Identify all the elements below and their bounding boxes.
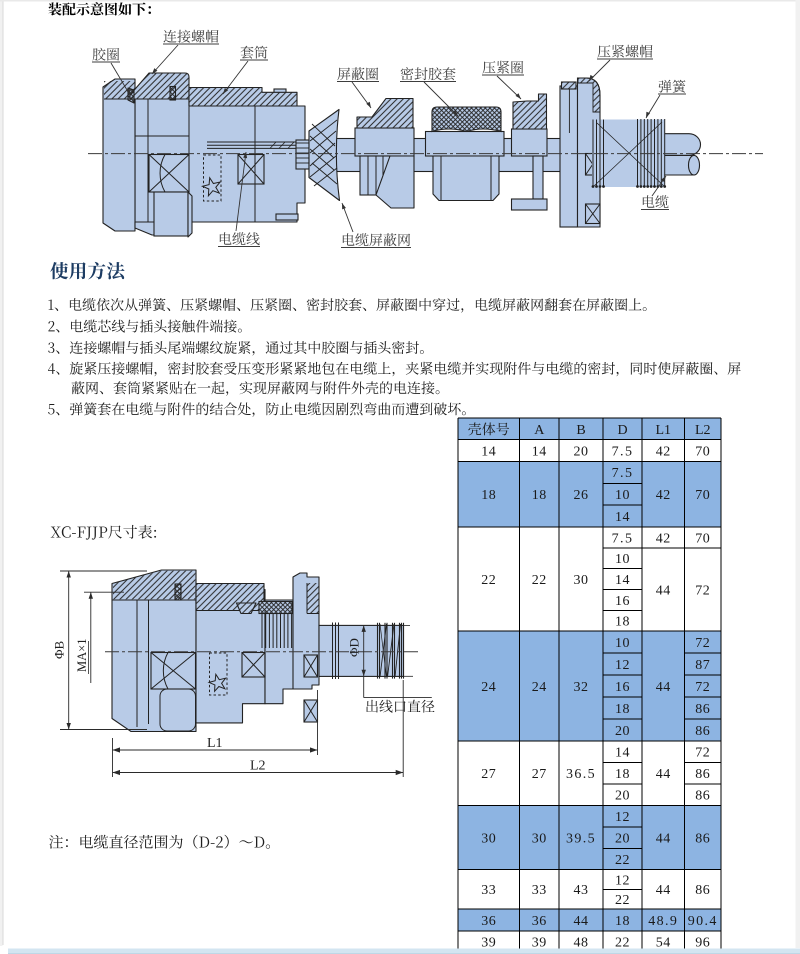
svg-text:39.5: 39.5 [566, 832, 596, 847]
svg-text:27: 27 [532, 767, 547, 782]
svg-text:16: 16 [615, 594, 630, 609]
svg-text:44: 44 [656, 680, 671, 695]
svg-text:26: 26 [574, 488, 589, 503]
svg-text:7.5: 7.5 [612, 531, 634, 546]
svg-text:18: 18 [481, 488, 496, 503]
svg-text:54: 54 [656, 936, 671, 951]
svg-text:70: 70 [695, 488, 710, 503]
svg-text:72: 72 [695, 636, 710, 651]
svg-text:30: 30 [532, 832, 547, 847]
svg-text:L1: L1 [207, 736, 223, 751]
svg-text:18: 18 [615, 767, 630, 782]
svg-text:7.5: 7.5 [612, 466, 634, 481]
svg-text:18: 18 [615, 702, 630, 717]
svg-text:36.5: 36.5 [566, 767, 596, 782]
svg-text:44: 44 [656, 583, 671, 598]
svg-text:10: 10 [615, 636, 630, 651]
svg-text:33: 33 [481, 883, 496, 898]
svg-text:36: 36 [532, 914, 547, 929]
svg-text:24: 24 [481, 680, 496, 695]
svg-text:44: 44 [656, 883, 671, 898]
svg-text:12: 12 [615, 810, 630, 825]
svg-text:7.5: 7.5 [612, 444, 634, 459]
svg-text:30: 30 [574, 573, 589, 588]
svg-text:42: 42 [656, 444, 671, 459]
svg-text:10: 10 [615, 488, 630, 503]
svg-text:86: 86 [695, 724, 710, 739]
svg-text:L1: L1 [655, 423, 671, 438]
svg-text:86: 86 [695, 767, 710, 782]
svg-text:87: 87 [695, 658, 710, 673]
svg-text:18: 18 [532, 488, 547, 503]
svg-text:44: 44 [656, 832, 671, 847]
svg-text:14: 14 [615, 746, 630, 761]
svg-text:70: 70 [695, 444, 710, 459]
svg-text:42: 42 [656, 488, 671, 503]
svg-text:90.4: 90.4 [688, 914, 718, 929]
svg-text:22: 22 [615, 936, 630, 951]
svg-text:32: 32 [574, 680, 589, 695]
svg-text:44: 44 [574, 914, 589, 929]
svg-text:30: 30 [481, 832, 496, 847]
svg-text:22: 22 [615, 893, 630, 908]
svg-text:20: 20 [574, 444, 589, 459]
svg-text:72: 72 [695, 680, 710, 695]
svg-text:86: 86 [695, 832, 710, 847]
svg-text:12: 12 [615, 873, 630, 888]
svg-text:27: 27 [481, 767, 496, 782]
svg-text:33: 33 [532, 883, 547, 898]
svg-text:22: 22 [532, 573, 547, 588]
svg-text:43: 43 [574, 883, 589, 898]
svg-text:86: 86 [695, 883, 710, 898]
svg-text:72: 72 [695, 746, 710, 761]
svg-text:20: 20 [615, 832, 630, 847]
svg-text:22: 22 [481, 573, 496, 588]
svg-text:A: A [534, 423, 545, 438]
svg-text:ΦB: ΦB [52, 640, 67, 659]
svg-text:20: 20 [615, 789, 630, 804]
svg-text:39: 39 [532, 936, 547, 951]
svg-text:18: 18 [615, 914, 630, 929]
svg-text:96: 96 [695, 936, 710, 951]
svg-text:ΦD: ΦD [347, 638, 362, 657]
svg-text:MA×1: MA×1 [75, 639, 89, 672]
svg-text:24: 24 [532, 680, 547, 695]
svg-text:20: 20 [615, 724, 630, 739]
svg-text:14: 14 [615, 510, 630, 525]
svg-text:18: 18 [615, 615, 630, 630]
svg-text:14: 14 [615, 573, 630, 588]
svg-text:48: 48 [574, 936, 589, 951]
svg-text:10: 10 [615, 552, 630, 567]
svg-text:14: 14 [481, 444, 496, 459]
svg-text:16: 16 [615, 680, 630, 695]
svg-text:L2: L2 [250, 759, 266, 774]
svg-text:86: 86 [695, 702, 710, 717]
svg-text:D: D [617, 423, 627, 438]
svg-text:48.9: 48.9 [648, 914, 678, 929]
svg-text:44: 44 [656, 767, 671, 782]
svg-text:86: 86 [695, 789, 710, 804]
svg-text:22: 22 [615, 853, 630, 868]
svg-text:39: 39 [481, 936, 496, 951]
svg-text:72: 72 [695, 583, 710, 598]
svg-text:B: B [576, 423, 585, 438]
svg-text:14: 14 [532, 444, 547, 459]
svg-text:L2: L2 [695, 423, 711, 438]
svg-text:70: 70 [695, 531, 710, 546]
svg-text:12: 12 [615, 658, 630, 673]
svg-text:36: 36 [481, 914, 496, 929]
svg-text:42: 42 [656, 531, 671, 546]
